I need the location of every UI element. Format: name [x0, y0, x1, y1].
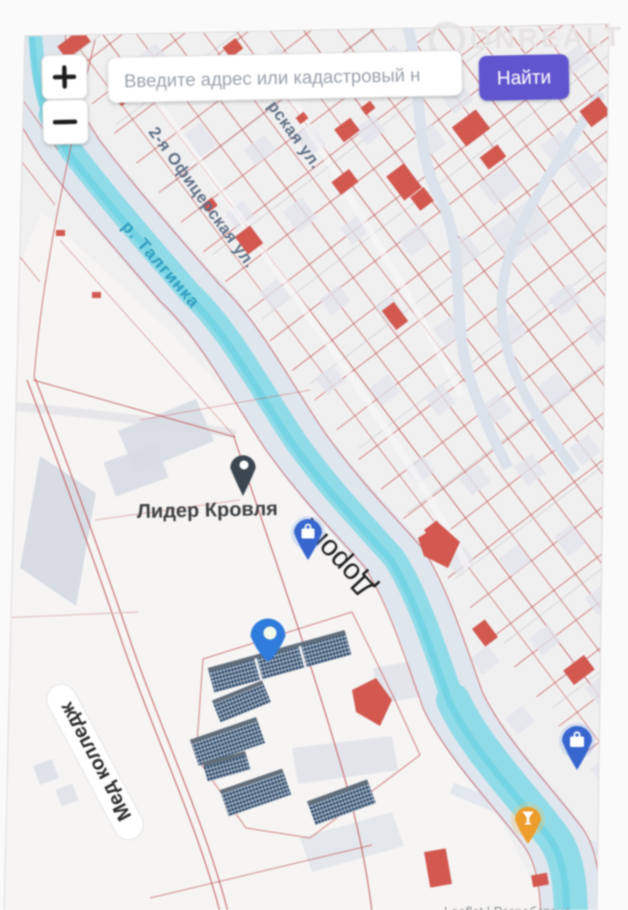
svg-text:ONREALT: ONREALT — [469, 21, 624, 55]
svg-text:Найти: Найти — [497, 67, 552, 89]
svg-text:Лидер Кровля: Лидер Кровля — [137, 498, 278, 523]
svg-text:Leaflet | Разработано: Leaflet | Разработано — [444, 904, 571, 910]
